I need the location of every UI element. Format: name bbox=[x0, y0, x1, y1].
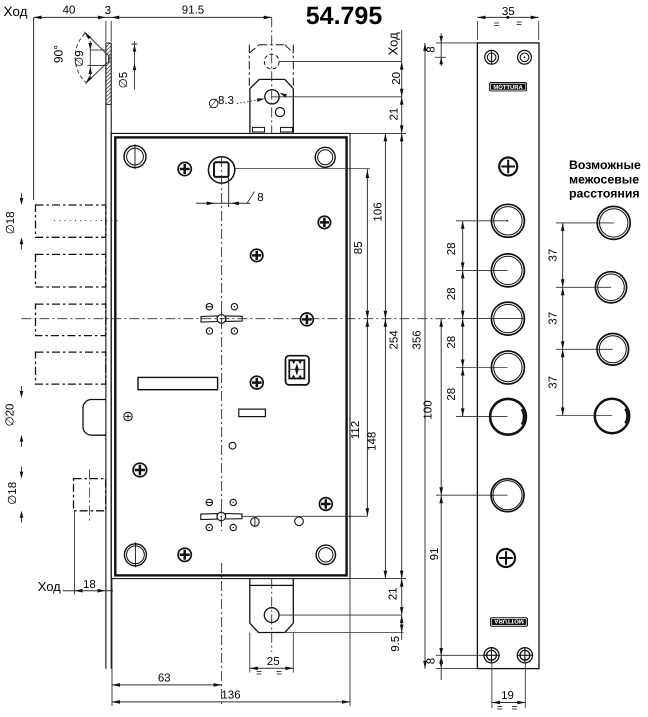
svg-text:37: 37 bbox=[548, 249, 560, 262]
svg-text:8: 8 bbox=[426, 658, 438, 664]
svg-text:20: 20 bbox=[391, 72, 403, 85]
svg-text:Ход: Ход bbox=[386, 32, 401, 55]
svg-text:112: 112 bbox=[350, 421, 362, 439]
svg-text:MOTTURA: MOTTURA bbox=[494, 618, 524, 625]
svg-text:=: = bbox=[516, 19, 522, 30]
svg-text:40: 40 bbox=[63, 5, 76, 17]
svg-text:28: 28 bbox=[446, 336, 458, 349]
svg-text:37: 37 bbox=[548, 376, 560, 389]
svg-text:межосевые: межосевые bbox=[569, 172, 639, 186]
svg-text:расстояния: расстояния bbox=[569, 187, 640, 201]
svg-text:∅9: ∅9 bbox=[74, 50, 86, 66]
svg-text:37: 37 bbox=[548, 312, 560, 325]
svg-text:18: 18 bbox=[83, 579, 96, 591]
svg-text:∅18: ∅18 bbox=[7, 482, 19, 505]
svg-text:19: 19 bbox=[501, 690, 514, 702]
svg-text:=: = bbox=[511, 703, 517, 714]
svg-text:63: 63 bbox=[158, 673, 171, 685]
svg-text:3: 3 bbox=[105, 5, 111, 17]
svg-text:∅20: ∅20 bbox=[5, 404, 17, 427]
svg-text:=: = bbox=[494, 20, 500, 31]
svg-text:Ход: Ход bbox=[4, 4, 28, 19]
svg-text:∅18: ∅18 bbox=[5, 211, 17, 234]
svg-text:21: 21 bbox=[389, 108, 401, 121]
svg-text:91: 91 bbox=[429, 548, 441, 561]
svg-text:MOTTURA: MOTTURA bbox=[493, 84, 523, 91]
svg-text:28: 28 bbox=[446, 243, 458, 256]
svg-text:Возможные: Возможные bbox=[569, 158, 641, 172]
svg-text:=: = bbox=[256, 668, 262, 679]
svg-text:8: 8 bbox=[257, 192, 263, 204]
svg-text:28: 28 bbox=[446, 288, 458, 301]
svg-text:136: 136 bbox=[221, 690, 240, 702]
svg-text:254: 254 bbox=[389, 330, 401, 350]
svg-text:25: 25 bbox=[267, 656, 280, 668]
svg-text:8: 8 bbox=[426, 46, 438, 52]
svg-text:85: 85 bbox=[353, 241, 365, 254]
svg-text:90°: 90° bbox=[52, 45, 66, 63]
svg-text:8.3: 8.3 bbox=[218, 95, 234, 107]
svg-text:28: 28 bbox=[446, 388, 458, 401]
svg-text:106: 106 bbox=[373, 202, 385, 221]
svg-text:9.5: 9.5 bbox=[390, 636, 402, 652]
svg-text:Ход: Ход bbox=[38, 579, 61, 594]
svg-text:148: 148 bbox=[366, 432, 378, 451]
svg-text:∅5: ∅5 bbox=[118, 72, 130, 88]
svg-text:=: = bbox=[276, 668, 282, 679]
svg-text:91.5: 91.5 bbox=[182, 5, 204, 17]
svg-text:54.795: 54.795 bbox=[306, 2, 383, 30]
svg-text:21: 21 bbox=[388, 587, 400, 600]
svg-text:100: 100 bbox=[423, 400, 435, 419]
svg-text:356: 356 bbox=[412, 330, 424, 349]
svg-text:=: = bbox=[497, 703, 503, 714]
